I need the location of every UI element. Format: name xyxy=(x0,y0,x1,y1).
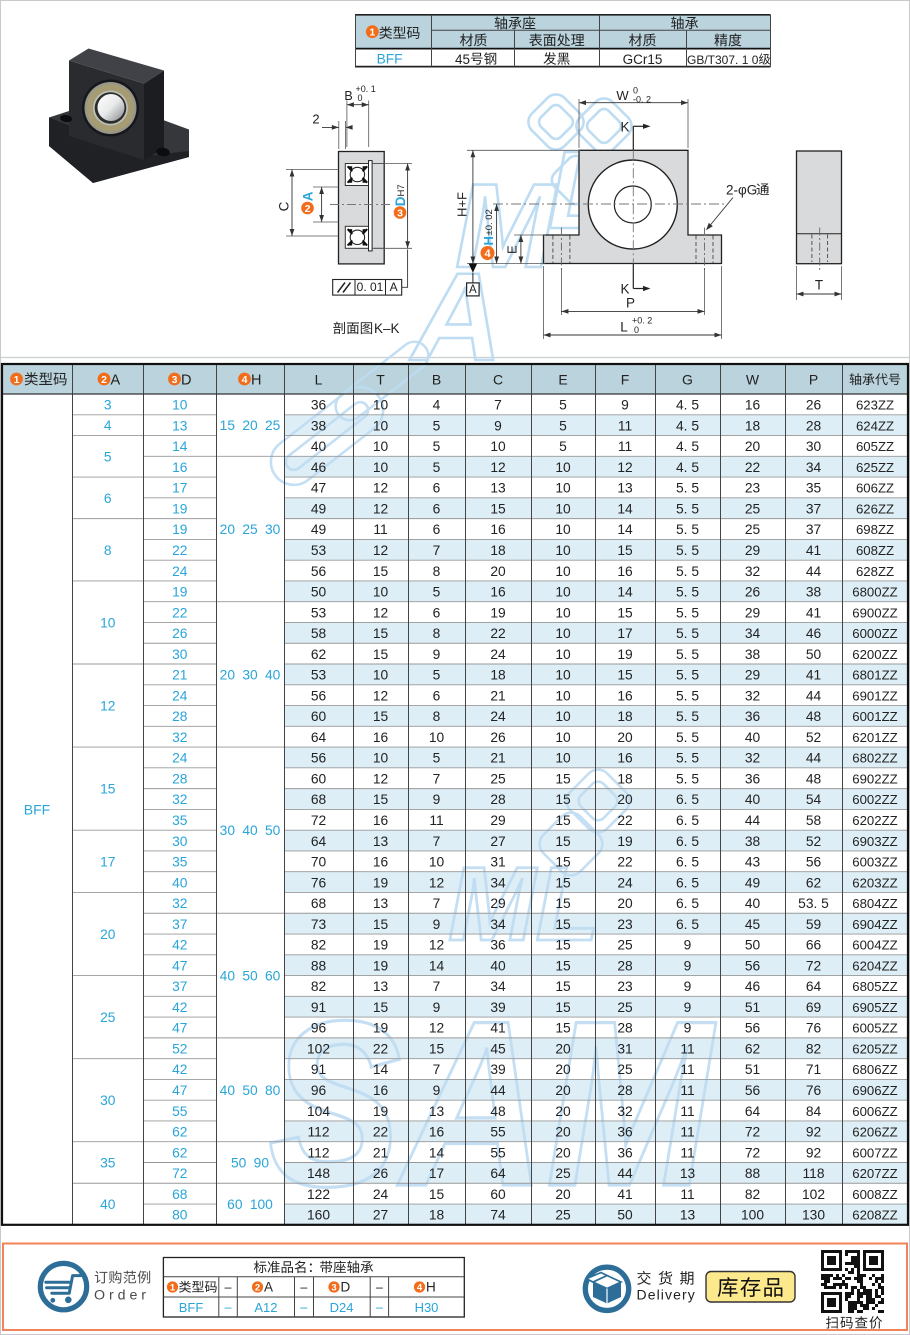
svg-text:10: 10 xyxy=(555,730,571,745)
svg-text:BFF: BFF xyxy=(179,1300,204,1315)
svg-text:92: 92 xyxy=(806,1145,821,1160)
svg-text:15 20 25: 15 20 25 xyxy=(220,418,281,433)
svg-text:21: 21 xyxy=(172,668,187,683)
svg-text:30 40 50: 30 40 50 xyxy=(220,823,281,838)
svg-text:9: 9 xyxy=(684,1021,692,1036)
svg-text:38: 38 xyxy=(806,585,822,600)
svg-text:–: – xyxy=(376,1280,383,1294)
svg-text:50: 50 xyxy=(617,1208,633,1223)
svg-text:19: 19 xyxy=(490,605,506,620)
svg-text:4. 5: 4. 5 xyxy=(676,460,699,475)
svg-text:13: 13 xyxy=(373,834,389,849)
svg-text:6905ZZ: 6905ZZ xyxy=(852,1000,897,1015)
svg-text:20: 20 xyxy=(490,564,506,579)
svg-text:5: 5 xyxy=(433,460,441,475)
svg-text:10: 10 xyxy=(373,398,389,413)
svg-text:30: 30 xyxy=(806,439,822,454)
svg-text:3: 3 xyxy=(172,374,178,386)
svg-text:39: 39 xyxy=(490,1062,506,1077)
svg-text:26: 26 xyxy=(806,398,822,413)
svg-text:71: 71 xyxy=(806,1062,821,1077)
svg-text:56: 56 xyxy=(745,1021,761,1036)
svg-text:12: 12 xyxy=(429,875,444,890)
svg-text:44: 44 xyxy=(806,751,822,766)
svg-text:5: 5 xyxy=(559,439,567,454)
svg-text:59: 59 xyxy=(806,917,822,932)
svg-text:5: 5 xyxy=(433,668,441,683)
svg-text:13: 13 xyxy=(429,1104,445,1119)
svg-text:52: 52 xyxy=(172,1041,187,1056)
svg-text:27: 27 xyxy=(373,1208,388,1223)
svg-text:6005ZZ: 6005ZZ xyxy=(852,1021,897,1036)
svg-text:23: 23 xyxy=(617,917,633,932)
svg-text:91: 91 xyxy=(311,1062,326,1077)
svg-text:62: 62 xyxy=(806,875,821,890)
svg-text:22: 22 xyxy=(172,543,187,558)
svg-text:34: 34 xyxy=(490,979,506,994)
svg-text:6203ZZ: 6203ZZ xyxy=(852,875,897,890)
svg-text:26: 26 xyxy=(490,730,506,745)
svg-text:6. 5: 6. 5 xyxy=(676,792,699,807)
svg-text:K–K: K–K xyxy=(374,321,400,336)
svg-text:44: 44 xyxy=(745,813,761,828)
svg-text:28: 28 xyxy=(617,1021,633,1036)
svg-text:15: 15 xyxy=(555,979,571,994)
svg-text:O r d e r: O r d e r xyxy=(94,1287,146,1303)
svg-text:6. 5: 6. 5 xyxy=(676,896,699,911)
svg-text:53: 53 xyxy=(311,605,327,620)
svg-text:32: 32 xyxy=(172,896,187,911)
svg-text:10: 10 xyxy=(555,709,571,724)
svg-text:102: 102 xyxy=(802,1187,825,1202)
svg-text:BFF: BFF xyxy=(24,801,50,817)
svg-text:12: 12 xyxy=(617,460,632,475)
svg-text:6002ZZ: 6002ZZ xyxy=(852,792,897,807)
svg-text:44: 44 xyxy=(806,564,822,579)
svg-text:5: 5 xyxy=(433,418,441,433)
svg-text:45: 45 xyxy=(745,917,761,932)
svg-text:5. 5: 5. 5 xyxy=(676,543,699,558)
svg-text:L: L xyxy=(620,320,628,335)
svg-text:13: 13 xyxy=(680,1208,696,1223)
svg-text:4. 5: 4. 5 xyxy=(676,439,699,454)
svg-text:25: 25 xyxy=(617,1062,633,1077)
svg-text:54: 54 xyxy=(806,792,822,807)
svg-text:6003ZZ: 6003ZZ xyxy=(852,855,897,870)
svg-text:1: 1 xyxy=(14,374,20,386)
svg-text:56: 56 xyxy=(745,958,761,973)
svg-text:GB/T307. 1 0: GB/T307. 1 0 xyxy=(687,53,759,67)
svg-text:41: 41 xyxy=(490,1021,505,1036)
svg-text:51: 51 xyxy=(745,1062,760,1077)
svg-text:8: 8 xyxy=(433,564,441,579)
svg-text:34: 34 xyxy=(745,626,761,641)
svg-text:25: 25 xyxy=(745,501,761,516)
svg-text:24: 24 xyxy=(172,564,188,579)
svg-text:10: 10 xyxy=(429,855,445,870)
svg-text:2: 2 xyxy=(305,203,311,215)
svg-text:9: 9 xyxy=(621,398,629,413)
svg-text:20: 20 xyxy=(617,792,633,807)
svg-text:48: 48 xyxy=(806,771,822,786)
svg-text:7: 7 xyxy=(433,896,441,911)
svg-text:6204ZZ: 6204ZZ xyxy=(852,958,897,973)
svg-text:5: 5 xyxy=(559,418,567,433)
svg-text:31: 31 xyxy=(617,1041,632,1056)
svg-text:10: 10 xyxy=(373,460,389,475)
svg-text:15: 15 xyxy=(429,1187,445,1202)
svg-text:20: 20 xyxy=(745,439,761,454)
svg-text:19: 19 xyxy=(172,522,188,537)
svg-text:72: 72 xyxy=(311,813,326,828)
svg-text:9: 9 xyxy=(684,979,692,994)
svg-text:10: 10 xyxy=(555,543,571,558)
svg-text:41: 41 xyxy=(617,1187,632,1202)
svg-text:10: 10 xyxy=(555,668,571,683)
svg-text:14: 14 xyxy=(429,958,445,973)
svg-text:11: 11 xyxy=(618,439,632,454)
svg-text:42: 42 xyxy=(172,1062,187,1077)
svg-text:41: 41 xyxy=(806,605,821,620)
svg-text:1: 1 xyxy=(170,1282,176,1293)
svg-text:28: 28 xyxy=(617,958,633,973)
svg-text:5: 5 xyxy=(559,398,567,413)
svg-text:82: 82 xyxy=(745,1187,760,1202)
svg-text:34: 34 xyxy=(490,875,506,890)
svg-text:5. 5: 5. 5 xyxy=(676,481,699,496)
svg-text:47: 47 xyxy=(172,958,187,973)
svg-text:70: 70 xyxy=(311,855,327,870)
svg-text:20: 20 xyxy=(555,1062,571,1077)
svg-text:24: 24 xyxy=(490,709,506,724)
svg-text:19: 19 xyxy=(373,875,389,890)
svg-text:11: 11 xyxy=(680,1104,694,1119)
svg-text:34: 34 xyxy=(806,460,822,475)
svg-text:82: 82 xyxy=(311,938,326,953)
svg-text:46: 46 xyxy=(806,626,822,641)
svg-text:37: 37 xyxy=(172,917,187,932)
svg-text:15: 15 xyxy=(555,855,571,870)
svg-text:8: 8 xyxy=(433,709,441,724)
svg-text:25: 25 xyxy=(617,938,633,953)
svg-text:7: 7 xyxy=(433,979,441,994)
svg-text:T: T xyxy=(376,371,385,387)
svg-text:9: 9 xyxy=(684,938,692,953)
svg-text:5. 5: 5. 5 xyxy=(676,688,699,703)
svg-text:62: 62 xyxy=(172,1125,187,1140)
svg-text:72: 72 xyxy=(806,958,821,973)
svg-text:A: A xyxy=(390,280,398,294)
svg-text:64: 64 xyxy=(745,1104,761,1119)
svg-text:2: 2 xyxy=(312,112,319,127)
svg-text:28: 28 xyxy=(172,709,188,724)
svg-text:3: 3 xyxy=(104,397,112,412)
svg-text:5. 5: 5. 5 xyxy=(676,501,699,516)
svg-text:6000ZZ: 6000ZZ xyxy=(852,626,897,641)
svg-text:14: 14 xyxy=(172,439,188,454)
svg-text:17: 17 xyxy=(429,1166,444,1181)
svg-text:1: 1 xyxy=(369,27,375,39)
svg-text:40 50 60: 40 50 60 xyxy=(220,969,281,984)
svg-text:15: 15 xyxy=(617,543,633,558)
svg-text:10: 10 xyxy=(373,585,389,600)
svg-text:44: 44 xyxy=(617,1166,633,1181)
svg-text:46: 46 xyxy=(311,460,327,475)
svg-text:24: 24 xyxy=(490,647,506,662)
svg-text:28: 28 xyxy=(617,1083,633,1098)
svg-text:25: 25 xyxy=(617,1000,633,1015)
svg-text:23: 23 xyxy=(745,481,761,496)
svg-text:32: 32 xyxy=(745,564,760,579)
svg-text:9: 9 xyxy=(433,647,441,662)
svg-text:13: 13 xyxy=(373,979,389,994)
svg-text:40: 40 xyxy=(745,792,761,807)
svg-text:2: 2 xyxy=(101,374,107,386)
svg-text:29: 29 xyxy=(490,813,506,828)
svg-text:56: 56 xyxy=(311,751,327,766)
svg-text:B: B xyxy=(432,371,441,387)
svg-text:15: 15 xyxy=(617,605,633,620)
svg-text:20 30 40: 20 30 40 xyxy=(220,667,281,682)
svg-text:48: 48 xyxy=(806,709,822,724)
svg-text:6900ZZ: 6900ZZ xyxy=(852,605,897,620)
svg-text:36: 36 xyxy=(617,1145,633,1160)
svg-text:Delivery: Delivery xyxy=(637,1287,696,1303)
svg-text:A: A xyxy=(264,1280,273,1295)
svg-text:6006ZZ: 6006ZZ xyxy=(852,1104,897,1119)
svg-text:605ZZ: 605ZZ xyxy=(856,439,894,454)
svg-text:102: 102 xyxy=(307,1041,330,1056)
svg-text:7: 7 xyxy=(494,398,502,413)
svg-text:48: 48 xyxy=(490,1104,506,1119)
svg-text:52: 52 xyxy=(806,834,821,849)
svg-text:W: W xyxy=(746,371,760,387)
svg-text:112: 112 xyxy=(308,1125,330,1140)
svg-text:15: 15 xyxy=(373,626,389,641)
svg-text:92: 92 xyxy=(806,1125,821,1140)
svg-text:12: 12 xyxy=(100,699,115,714)
svg-text:38: 38 xyxy=(311,418,327,433)
svg-text:6202ZZ: 6202ZZ xyxy=(852,813,897,828)
svg-text:626ZZ: 626ZZ xyxy=(856,501,894,516)
svg-text:9: 9 xyxy=(684,958,692,973)
svg-text:10: 10 xyxy=(429,730,445,745)
svg-text:10: 10 xyxy=(555,647,571,662)
svg-text:22: 22 xyxy=(172,605,187,620)
svg-text:55: 55 xyxy=(490,1125,506,1140)
svg-text:6906ZZ: 6906ZZ xyxy=(852,1083,897,1098)
svg-text:58: 58 xyxy=(311,626,327,641)
svg-text:12: 12 xyxy=(429,938,444,953)
svg-text:62: 62 xyxy=(172,1145,187,1160)
svg-text:6205ZZ: 6205ZZ xyxy=(852,1041,897,1056)
svg-text:10: 10 xyxy=(555,460,571,475)
svg-text:9: 9 xyxy=(494,418,502,433)
svg-text:6208ZZ: 6208ZZ xyxy=(852,1208,897,1223)
svg-text:10: 10 xyxy=(555,564,571,579)
svg-text:4: 4 xyxy=(242,374,248,386)
svg-text:6008ZZ: 6008ZZ xyxy=(852,1187,897,1202)
svg-text:39: 39 xyxy=(490,1000,506,1015)
svg-text:80: 80 xyxy=(172,1208,188,1223)
svg-text:6: 6 xyxy=(433,501,441,516)
svg-text:32: 32 xyxy=(745,751,760,766)
svg-text:26: 26 xyxy=(172,626,188,641)
svg-text:10: 10 xyxy=(555,585,571,600)
svg-text:11: 11 xyxy=(373,522,387,537)
svg-text:20: 20 xyxy=(555,1187,571,1202)
svg-text:B: B xyxy=(344,89,352,103)
svg-text:10: 10 xyxy=(100,615,116,630)
svg-text:37: 37 xyxy=(806,522,821,537)
svg-text:10: 10 xyxy=(373,439,389,454)
svg-text:19: 19 xyxy=(172,585,188,600)
svg-text:45: 45 xyxy=(455,52,470,67)
svg-text:25: 25 xyxy=(490,771,506,786)
svg-text:6001ZZ: 6001ZZ xyxy=(852,709,897,724)
svg-text:12: 12 xyxy=(490,460,505,475)
svg-text:16: 16 xyxy=(745,398,761,413)
svg-text:15: 15 xyxy=(490,501,506,516)
svg-text:5. 5: 5. 5 xyxy=(676,647,699,662)
svg-text:4: 4 xyxy=(433,398,441,413)
svg-text:4: 4 xyxy=(417,1282,423,1293)
svg-text:6801ZZ: 6801ZZ xyxy=(852,668,897,683)
svg-text:40: 40 xyxy=(100,1197,116,1212)
svg-text:84: 84 xyxy=(806,1104,822,1119)
svg-text:9: 9 xyxy=(433,1000,441,1015)
svg-text:5. 5: 5. 5 xyxy=(676,564,699,579)
svg-text:6902ZZ: 6902ZZ xyxy=(852,771,897,786)
svg-text:88: 88 xyxy=(311,958,327,973)
svg-text:35: 35 xyxy=(172,813,188,828)
svg-text:47: 47 xyxy=(172,1021,187,1036)
svg-text:5. 5: 5. 5 xyxy=(676,751,699,766)
svg-text:49: 49 xyxy=(311,501,327,516)
svg-text:26: 26 xyxy=(373,1166,389,1181)
svg-text:122: 122 xyxy=(307,1187,330,1202)
svg-text:12: 12 xyxy=(373,481,388,496)
svg-text:2-φG: 2-φG xyxy=(726,183,757,198)
svg-text:C: C xyxy=(493,371,503,387)
svg-text:56: 56 xyxy=(311,688,327,703)
svg-text:6007ZZ: 6007ZZ xyxy=(852,1145,897,1160)
svg-text:15: 15 xyxy=(555,1021,571,1036)
svg-text:15: 15 xyxy=(555,771,571,786)
svg-text:10: 10 xyxy=(555,688,571,703)
svg-text:18: 18 xyxy=(490,668,506,683)
svg-text:30: 30 xyxy=(172,647,188,662)
svg-text:21: 21 xyxy=(490,688,505,703)
svg-text:6. 5: 6. 5 xyxy=(676,855,699,870)
svg-text:16: 16 xyxy=(373,813,389,828)
svg-text:19: 19 xyxy=(373,958,389,973)
svg-text:4. 5: 4. 5 xyxy=(676,418,699,433)
svg-text:24: 24 xyxy=(617,875,633,890)
svg-text:22: 22 xyxy=(490,626,505,641)
svg-text:L: L xyxy=(315,371,323,387)
svg-text:7: 7 xyxy=(433,543,441,558)
svg-text:H30: H30 xyxy=(415,1300,439,1315)
svg-text:4: 4 xyxy=(484,248,491,260)
svg-text:P: P xyxy=(809,371,818,387)
svg-text:14: 14 xyxy=(429,1145,445,1160)
svg-text:5: 5 xyxy=(433,585,441,600)
svg-text:5. 5: 5. 5 xyxy=(676,771,699,786)
svg-text:28: 28 xyxy=(806,418,822,433)
svg-text:H: H xyxy=(251,372,261,388)
svg-text:15: 15 xyxy=(555,917,571,932)
svg-text:11: 11 xyxy=(680,1187,694,1202)
svg-text:7: 7 xyxy=(433,771,441,786)
svg-text:25: 25 xyxy=(555,1208,571,1223)
svg-text:13: 13 xyxy=(617,481,633,496)
svg-text:24: 24 xyxy=(172,751,188,766)
svg-text:30: 30 xyxy=(172,834,188,849)
svg-text:22: 22 xyxy=(373,1125,388,1140)
svg-text:11: 11 xyxy=(680,1062,694,1077)
svg-text:19: 19 xyxy=(373,1104,389,1119)
svg-text:10: 10 xyxy=(555,501,571,516)
svg-text:16: 16 xyxy=(373,855,389,870)
svg-text:40: 40 xyxy=(490,958,506,973)
svg-text:10: 10 xyxy=(555,605,571,620)
svg-text:6806ZZ: 6806ZZ xyxy=(852,1062,897,1077)
svg-text:H: H xyxy=(426,1280,436,1295)
svg-text:52: 52 xyxy=(806,730,821,745)
svg-text:15: 15 xyxy=(555,792,571,807)
svg-text:55: 55 xyxy=(172,1104,188,1119)
svg-text:53. 5: 53. 5 xyxy=(798,896,829,911)
svg-text:20: 20 xyxy=(100,927,116,942)
svg-text:24: 24 xyxy=(172,688,188,703)
svg-text:12: 12 xyxy=(373,688,388,703)
svg-text:25: 25 xyxy=(745,522,761,537)
svg-text:6802ZZ: 6802ZZ xyxy=(852,751,897,766)
svg-text:37: 37 xyxy=(172,979,187,994)
svg-text:6. 5: 6. 5 xyxy=(676,834,699,849)
svg-text:64: 64 xyxy=(490,1166,506,1181)
svg-text:-0. 2: -0. 2 xyxy=(633,95,651,105)
svg-text:19: 19 xyxy=(373,1021,389,1036)
svg-text:H: H xyxy=(481,236,496,245)
svg-text:G: G xyxy=(682,371,693,387)
svg-text:7: 7 xyxy=(433,1062,441,1077)
svg-text:15: 15 xyxy=(555,1000,571,1015)
svg-text:0: 0 xyxy=(634,325,639,335)
svg-text:72: 72 xyxy=(172,1166,187,1181)
svg-text:ML: ML xyxy=(448,846,600,963)
svg-text:21: 21 xyxy=(373,1145,388,1160)
svg-text:51: 51 xyxy=(745,1000,760,1015)
svg-text:6207ZZ: 6207ZZ xyxy=(852,1166,897,1181)
svg-text:47: 47 xyxy=(172,1083,187,1098)
svg-text:21: 21 xyxy=(490,751,505,766)
svg-text:H+F: H+F xyxy=(455,192,470,217)
svg-text:4: 4 xyxy=(104,418,112,433)
svg-text:28: 28 xyxy=(490,792,506,807)
svg-text:15: 15 xyxy=(373,647,389,662)
svg-text:6904ZZ: 6904ZZ xyxy=(852,917,897,932)
svg-text:–: – xyxy=(225,1300,232,1314)
svg-text:130: 130 xyxy=(802,1208,825,1223)
svg-text:62: 62 xyxy=(311,647,326,662)
svg-text:6804ZZ: 6804ZZ xyxy=(852,896,897,911)
svg-text:22: 22 xyxy=(373,1041,388,1056)
svg-text:6. 5: 6. 5 xyxy=(676,875,699,890)
svg-text:69: 69 xyxy=(806,1000,822,1015)
svg-text:45: 45 xyxy=(490,1041,506,1056)
